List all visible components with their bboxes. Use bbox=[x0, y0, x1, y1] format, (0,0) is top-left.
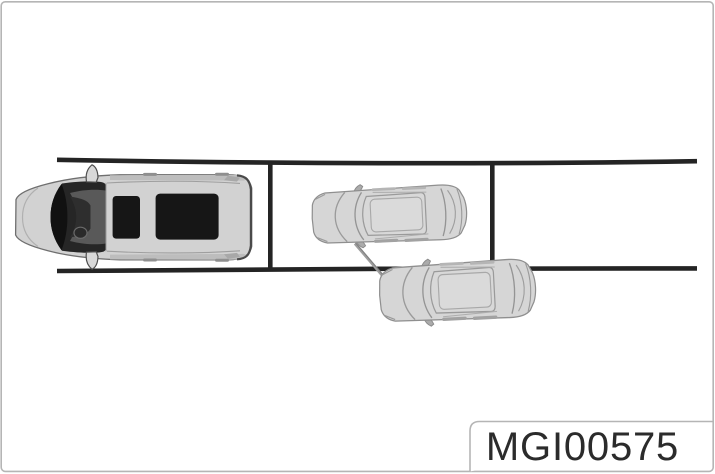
svg-text:MGI00575: MGI00575 bbox=[486, 425, 679, 469]
